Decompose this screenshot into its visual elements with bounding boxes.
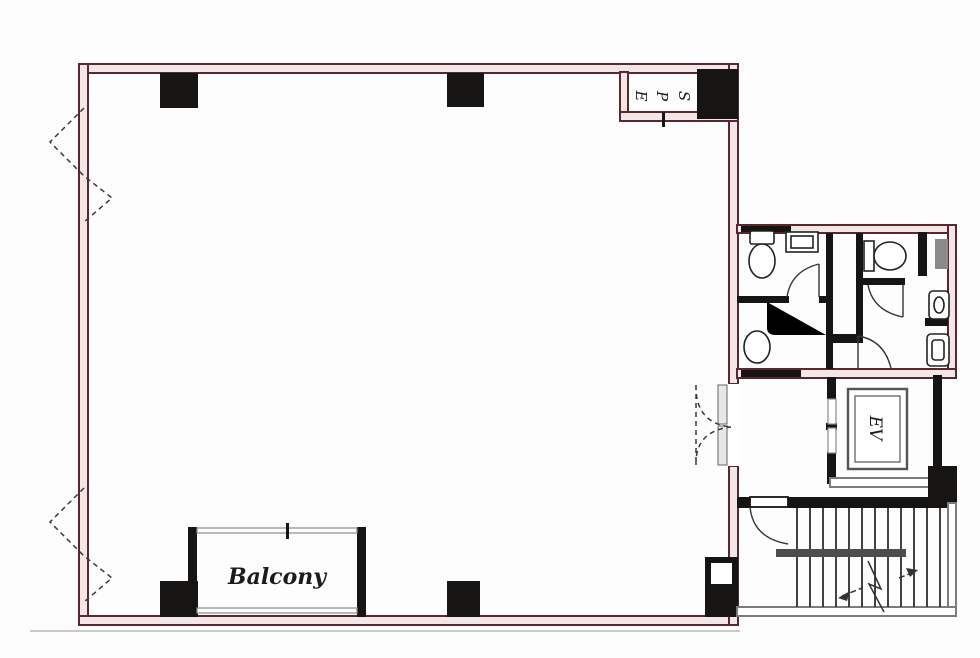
toilet-tank-icon <box>750 231 774 244</box>
door-opening <box>727 384 740 466</box>
elevator-shaft: EV <box>826 375 957 506</box>
door-swing-icon <box>868 285 903 317</box>
toilet-icon <box>874 242 906 270</box>
entry-double-door <box>696 384 740 466</box>
column <box>697 69 738 119</box>
stair-break-mark <box>868 561 884 612</box>
shaft-wall <box>933 375 942 472</box>
wall-tick <box>286 523 289 539</box>
toilet-icon <box>749 244 775 278</box>
door-swing-icon <box>750 507 788 544</box>
column <box>447 73 484 107</box>
eps-letter: E <box>632 90 650 102</box>
column <box>160 73 198 108</box>
partition-wall <box>819 296 828 303</box>
balcony-railing-line <box>197 608 357 613</box>
restrooms <box>737 231 949 369</box>
stall-partition <box>767 302 826 335</box>
partition-wall <box>737 296 789 303</box>
elevator-door-panel <box>828 399 836 424</box>
sink-basin-icon <box>791 236 813 248</box>
wall-left <box>79 64 88 625</box>
wall-hatch <box>741 370 801 377</box>
column <box>447 581 480 617</box>
door-swing-icon <box>787 264 819 297</box>
sink-basin-icon <box>932 340 944 360</box>
columns <box>160 69 738 617</box>
wall-top <box>79 64 737 73</box>
eps-letter: P <box>653 90 671 102</box>
eps-shaft: E P S <box>632 90 693 102</box>
stair-handrail <box>776 549 906 557</box>
partition-wall <box>856 233 863 336</box>
elevator-label: EV <box>865 415 885 442</box>
door-leaf <box>750 497 788 507</box>
floor-plan: E P S <box>0 0 980 658</box>
sink-basin-icon <box>934 297 944 313</box>
balcony: Balcony <box>188 523 366 617</box>
stair-wall-bottom <box>737 607 956 616</box>
shaft-wall <box>827 377 836 399</box>
eps-letter: S <box>675 91 693 101</box>
staircase <box>737 497 956 616</box>
stair-treads <box>797 508 940 607</box>
balcony-wall-right <box>357 527 366 617</box>
elevator-door-panel <box>828 428 836 453</box>
toilet-tank-icon <box>864 241 874 271</box>
toilet-icon <box>744 331 770 363</box>
door-leaf <box>718 426 727 465</box>
balcony-label: Balcony <box>227 564 328 590</box>
balcony-wall-left <box>188 527 197 617</box>
balcony-window-line <box>197 528 357 533</box>
door-leaf <box>718 385 727 424</box>
urinal-icon <box>935 239 948 269</box>
wall-bottom <box>79 616 737 625</box>
stair-wall-right <box>948 503 956 615</box>
column-notch <box>711 563 732 584</box>
arrowhead-icon <box>906 568 918 577</box>
wall-tick <box>662 112 665 127</box>
partition-wall <box>918 232 927 276</box>
floor-plan-drawing: E P S <box>0 0 980 658</box>
stair-wall-top <box>788 497 956 508</box>
partition-wall <box>863 278 905 285</box>
exterior-walls <box>79 64 956 625</box>
